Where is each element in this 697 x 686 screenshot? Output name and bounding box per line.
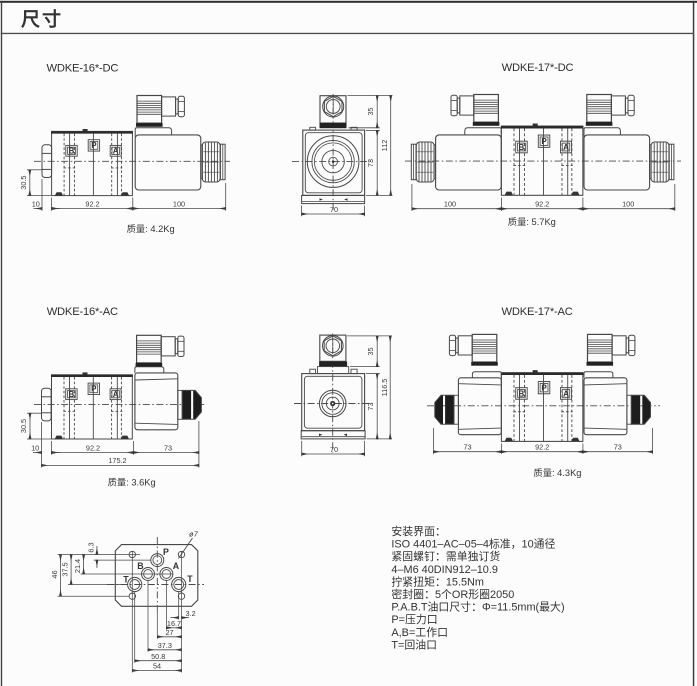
svg-text:6.3: 6.3 (86, 542, 95, 552)
svg-text:10: 10 (32, 199, 40, 208)
svg-text:A: A (173, 561, 180, 571)
svg-text:35: 35 (366, 347, 375, 355)
svg-text:WDKE-17*-DC: WDKE-17*-DC (502, 62, 574, 74)
svg-text:ISO 4401–AC–05–4标准，10通径: ISO 4401–AC–05–4标准，10通径 (391, 537, 555, 551)
svg-text:73: 73 (164, 443, 172, 452)
svg-text:70: 70 (330, 205, 338, 214)
svg-text:37.5: 37.5 (61, 562, 70, 576)
svg-text:10: 10 (31, 443, 39, 452)
svg-text:B: B (137, 561, 143, 571)
svg-text:73: 73 (614, 443, 622, 452)
svg-text:175.2: 175.2 (108, 456, 126, 465)
svg-text:27: 27 (165, 628, 173, 637)
svg-text:92.2: 92.2 (535, 200, 549, 209)
svg-text:50.8: 50.8 (151, 652, 165, 661)
svg-text:密封圈：5个OR形圈2050: 密封圈：5个OR形圈2050 (391, 587, 514, 601)
svg-text:100: 100 (622, 200, 634, 209)
svg-text:70: 70 (330, 445, 338, 454)
svg-text:116.5: 116.5 (380, 379, 389, 397)
svg-text:73: 73 (463, 443, 471, 452)
svg-text:紧固螺钉：需单独订货: 紧固螺钉：需单独订货 (391, 549, 500, 563)
svg-text:T: T (123, 574, 129, 584)
svg-text:质量: 3.6Kg: 质量: 3.6Kg (108, 477, 156, 488)
svg-text:T: T (187, 574, 193, 584)
svg-text:安装界面：: 安装界面： (391, 524, 445, 538)
svg-text:质量: 4.2Kg: 质量: 4.2Kg (127, 223, 175, 234)
svg-text:T=回油口: T=回油口 (391, 637, 437, 651)
svg-text:37.3: 37.3 (158, 641, 172, 650)
svg-text:92.2: 92.2 (86, 443, 100, 452)
svg-text:4–M6 40DIN912–10.9: 4–M6 40DIN912–10.9 (391, 564, 498, 576)
svg-text:尺寸: 尺寸 (21, 8, 63, 31)
svg-text:A,B=工作口: A,B=工作口 (391, 626, 448, 639)
svg-text:拧紧扭矩：15.5Nm: 拧紧扭矩：15.5Nm (391, 574, 484, 588)
svg-text:46: 46 (50, 570, 59, 578)
svg-text:质量: 4.3Kg: 质量: 4.3Kg (533, 467, 581, 478)
svg-text:30.5: 30.5 (19, 175, 28, 189)
svg-text:73: 73 (366, 159, 375, 167)
svg-text:ø7: ø7 (189, 530, 199, 539)
svg-text:WDKE-16*-DC: WDKE-16*-DC (47, 63, 119, 75)
svg-text:16.7: 16.7 (167, 619, 181, 628)
svg-text:54: 54 (153, 662, 161, 671)
svg-text:73: 73 (366, 402, 375, 410)
svg-text:3.2: 3.2 (186, 609, 196, 618)
svg-text:质量: 5.7Kg: 质量: 5.7Kg (508, 216, 556, 227)
svg-text:35: 35 (366, 108, 375, 116)
svg-text:21.4: 21.4 (73, 559, 82, 573)
svg-text:P=压力口: P=压力口 (391, 613, 437, 626)
svg-text:112: 112 (380, 140, 389, 152)
svg-text:30.5: 30.5 (19, 419, 28, 433)
svg-text:100: 100 (444, 200, 456, 209)
svg-text:P: P (163, 547, 169, 557)
svg-text:P.A.B.T油口尺寸：Φ=11.5mm(最大): P.A.B.T油口尺寸：Φ=11.5mm(最大) (391, 600, 564, 614)
svg-text:WDKE-17*-AC: WDKE-17*-AC (502, 306, 573, 318)
svg-text:92.2: 92.2 (85, 199, 99, 208)
svg-text:WDKE-16*-AC: WDKE-16*-AC (47, 306, 118, 318)
svg-text:100: 100 (173, 199, 185, 208)
svg-text:92.2: 92.2 (535, 443, 549, 452)
